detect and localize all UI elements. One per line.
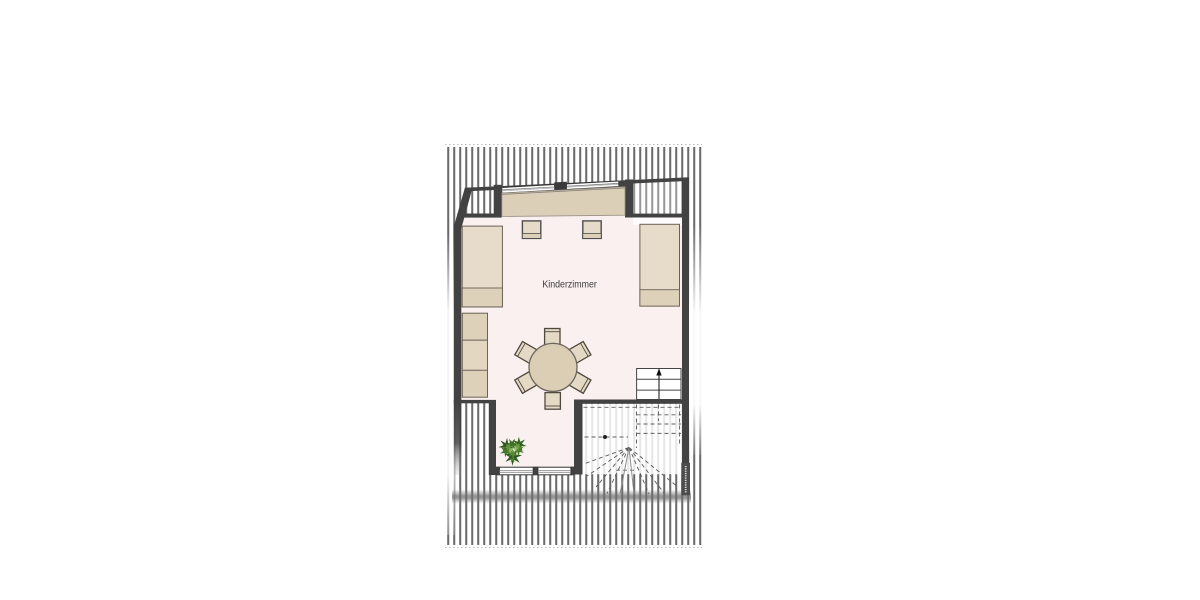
svg-text:Kinderzimmer: Kinderzimmer xyxy=(542,278,597,290)
